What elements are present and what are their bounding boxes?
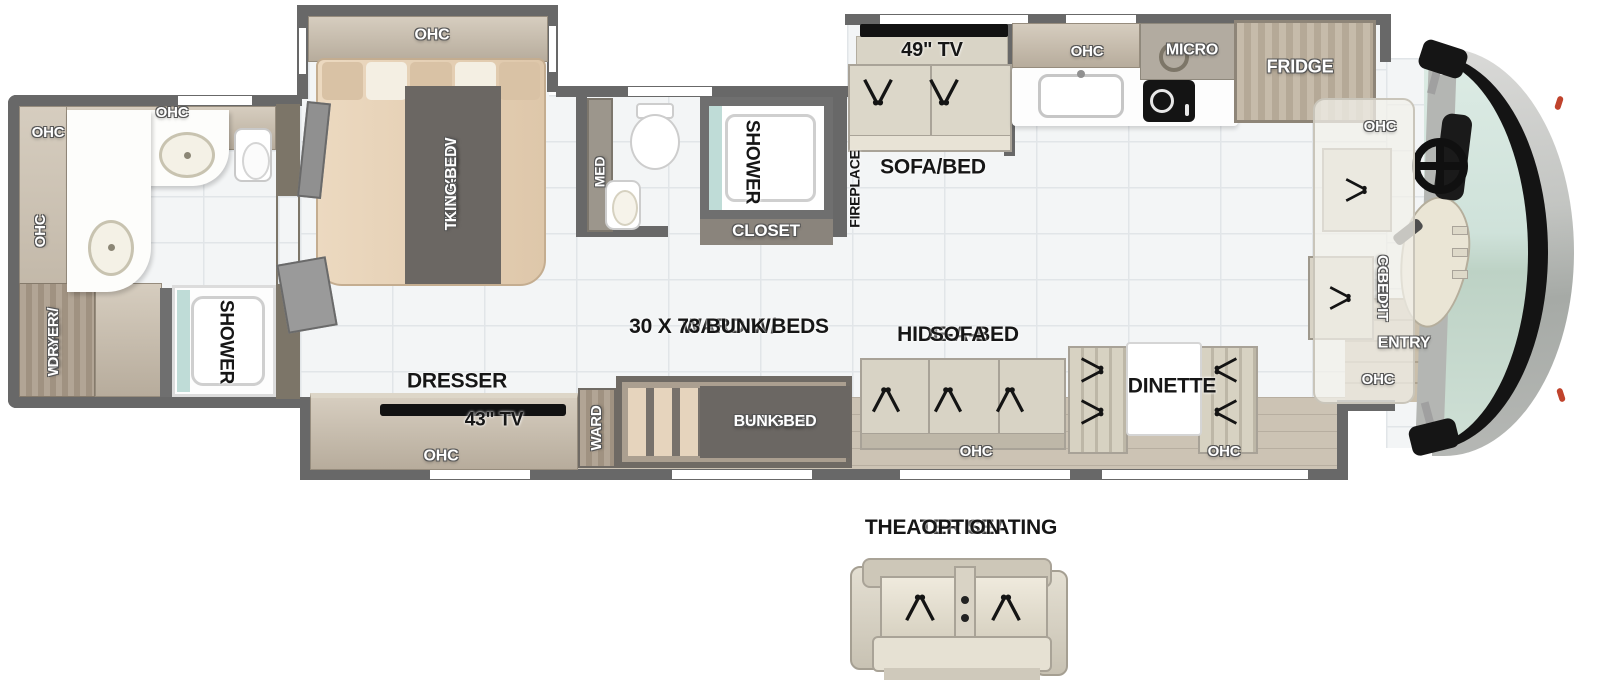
kitchen-sink: [1038, 74, 1124, 118]
label-line: BUNK BED: [734, 413, 817, 430]
wall: [1337, 400, 1348, 480]
fold-mark-icon: [867, 384, 905, 416]
wall: [160, 288, 172, 397]
label-entry: ENTRY: [1378, 334, 1431, 351]
fold-mark-icon: [1326, 282, 1354, 314]
marker-light: [1554, 95, 1564, 110]
label-fridge: FRIDGE: [1267, 57, 1334, 76]
label-dinette: DINETTE: [1128, 376, 1216, 399]
bunk-mattress: [628, 388, 702, 456]
label-fireplace: FIREPLACE: [847, 150, 862, 228]
label-line: KING BED: [443, 146, 461, 223]
fold-mark-icon: [900, 591, 940, 625]
fold-mark-icon: [1211, 395, 1241, 429]
cabinet: [95, 283, 162, 397]
cockpit-bed-overlay: [1313, 98, 1415, 404]
label-closet: CLOSET: [732, 222, 800, 240]
rv-floorplan: OHC OHC OHC WASHER/ DRYER SHOWER OHC 72 …: [0, 0, 1600, 685]
faucet: [184, 152, 191, 159]
dash-detail: [1452, 226, 1468, 235]
fold-mark-icon: [858, 75, 898, 109]
label-ohc: OHC: [33, 215, 49, 248]
fireplace-wall: [833, 95, 847, 237]
wall: [1380, 14, 1391, 62]
cupholder: [961, 614, 969, 622]
fold-mark-icon: [924, 75, 964, 109]
window: [900, 470, 1070, 479]
label-ohc: OHC: [1208, 444, 1241, 460]
label-micro: MICRO: [1166, 41, 1218, 58]
window: [628, 87, 712, 96]
label-ohc: OHC: [32, 125, 65, 141]
wall: [8, 397, 310, 408]
theater-console: [954, 566, 976, 646]
wall: [297, 5, 558, 16]
wall: [8, 95, 19, 408]
window: [1102, 470, 1308, 479]
fold-mark-icon: [1077, 353, 1107, 387]
label-dresser: DRESSER: [407, 371, 507, 394]
window: [430, 470, 530, 479]
theater-seat-front: [872, 636, 1052, 672]
label-ohc: OHC: [1364, 119, 1397, 135]
fold-mark-icon: [986, 591, 1026, 625]
label-shower: SHOWER: [215, 300, 236, 384]
fold-mark-icon: [991, 384, 1029, 416]
toilet: [234, 128, 272, 182]
label-line: BED: [1374, 272, 1390, 303]
wall: [576, 97, 587, 237]
marker-light: [1556, 387, 1566, 402]
theater-base: [884, 668, 1040, 680]
label-tv-49: 49" TV: [901, 40, 963, 62]
steering-wheel: [1412, 138, 1468, 194]
fold-mark-icon: [929, 384, 967, 416]
label-ohc: OHC: [1071, 44, 1104, 60]
label-tv-43: 43" TV: [465, 411, 524, 432]
label-ohc: OHC: [156, 105, 189, 121]
fold-mark-icon: [1077, 395, 1107, 429]
faucet: [108, 244, 115, 251]
window: [880, 15, 1028, 24]
dash-detail: [1452, 270, 1468, 279]
pillow: [366, 62, 407, 100]
window: [299, 28, 306, 74]
toilet: [630, 114, 680, 170]
label-ohc: OHC: [415, 26, 450, 43]
pillow: [322, 62, 363, 100]
label-line: SOFA: [930, 324, 986, 347]
stove: [1143, 80, 1195, 122]
label-line: DRYER: [46, 317, 62, 368]
label-med: MED: [592, 157, 607, 188]
label-ohc: OHC: [1362, 372, 1395, 388]
label-line: 30 X 73 BUNK BEDS: [629, 316, 829, 339]
label-ohc: OHC: [424, 447, 459, 464]
window: [672, 470, 812, 479]
sink: [605, 180, 641, 230]
label-ohc: OHC: [960, 444, 993, 460]
window: [549, 26, 556, 72]
label-ward: WARD: [589, 405, 605, 450]
dash-detail: [1452, 248, 1468, 257]
shower: [700, 97, 833, 219]
cupholder: [961, 596, 969, 604]
window: [178, 96, 252, 105]
label-sofa-bed: SOFA/BED: [880, 157, 986, 180]
pillow: [499, 62, 540, 100]
fold-mark-icon: [1342, 174, 1370, 206]
tv-49: [860, 24, 1008, 37]
label-line: OPTION: [921, 517, 1000, 540]
label-shower: SHOWER: [741, 120, 762, 204]
